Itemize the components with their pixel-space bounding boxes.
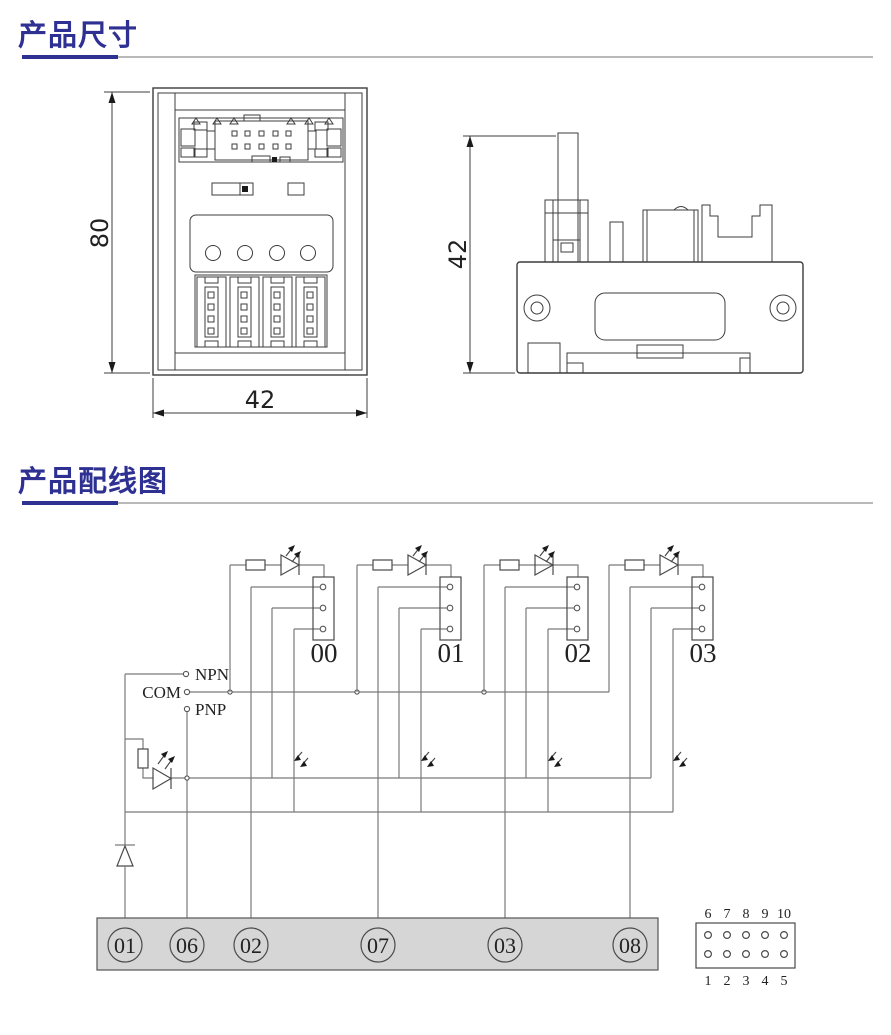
- channel-label: 01: [438, 638, 465, 668]
- pin-number-bottom: 5: [781, 974, 788, 989]
- indicator-resistor: [138, 749, 148, 768]
- pin-number-top: 10: [777, 907, 791, 922]
- datasheet-page: 产品尺寸 产品配线图: [0, 0, 891, 1035]
- drawings-layer: 80 42: [0, 0, 891, 1035]
- side-view-drawing: 42: [444, 133, 803, 373]
- pnp-terminal: [184, 706, 189, 711]
- output-channel-01: 01: [357, 545, 465, 928]
- pnp-label: PNP: [195, 700, 226, 719]
- pin-number-bottom: 4: [762, 974, 769, 989]
- pin-number-bottom: 3: [743, 974, 750, 989]
- channel-resistor: [625, 560, 644, 570]
- npn-terminal: [183, 671, 188, 676]
- channel-led: [660, 555, 678, 575]
- pin-number-bottom: 1: [705, 974, 712, 989]
- output-channel-00: 00: [230, 545, 338, 928]
- channel-resistor: [246, 560, 265, 570]
- channel-label: 00: [311, 638, 338, 668]
- output-channel-02: 02: [484, 545, 592, 928]
- output-channel-03: 03: [609, 545, 717, 928]
- front-width-label: 42: [245, 386, 276, 414]
- pin-number-top: 7: [724, 907, 731, 922]
- strip-terminal-label: 07: [367, 933, 389, 958]
- wiring-diagram: NPN COM PNP: [97, 545, 795, 989]
- pin-number-top: 9: [762, 907, 769, 922]
- channel-resistor: [373, 560, 392, 570]
- side-height-label: 42: [444, 239, 472, 270]
- front-height-label: 80: [86, 218, 114, 249]
- strip-terminal-label: 01: [114, 933, 136, 958]
- strip-terminal-label: 06: [176, 933, 198, 958]
- connector-pin-grid: [232, 131, 291, 149]
- front-terminal-blocks: [197, 277, 325, 347]
- com-terminal: [184, 689, 189, 694]
- protection-diode: [117, 846, 133, 866]
- indicator-led: [153, 768, 171, 789]
- channel-led: [281, 555, 299, 575]
- side-height-dimension: 42: [444, 136, 556, 373]
- power-indicator-branch: [115, 739, 175, 928]
- channel-label: 02: [565, 638, 592, 668]
- terminal-strip: 01 06 02 07 03 08: [97, 918, 658, 970]
- channel-resistor: [500, 560, 519, 570]
- connector-latches: [181, 122, 341, 157]
- input-terminals: NPN COM PNP: [125, 665, 229, 928]
- npn-label: NPN: [195, 665, 229, 684]
- front-view-drawing: 80 42: [86, 88, 367, 418]
- com-label: COM: [142, 683, 181, 702]
- pin-header: 6 7 8 9 10 1 2 3 4 5: [696, 907, 795, 989]
- front-width-dimension: 42: [153, 378, 367, 418]
- channel-label: 03: [690, 638, 717, 668]
- strip-terminal-label: 02: [240, 933, 262, 958]
- channel-led: [408, 555, 426, 575]
- strip-terminal-label: 08: [619, 933, 641, 958]
- pin-number-top: 8: [743, 907, 750, 922]
- strip-terminal-label: 03: [494, 933, 516, 958]
- pin-number-bottom: 2: [724, 974, 731, 989]
- pin-number-top: 6: [705, 907, 712, 922]
- front-height-dimension: 80: [86, 92, 150, 373]
